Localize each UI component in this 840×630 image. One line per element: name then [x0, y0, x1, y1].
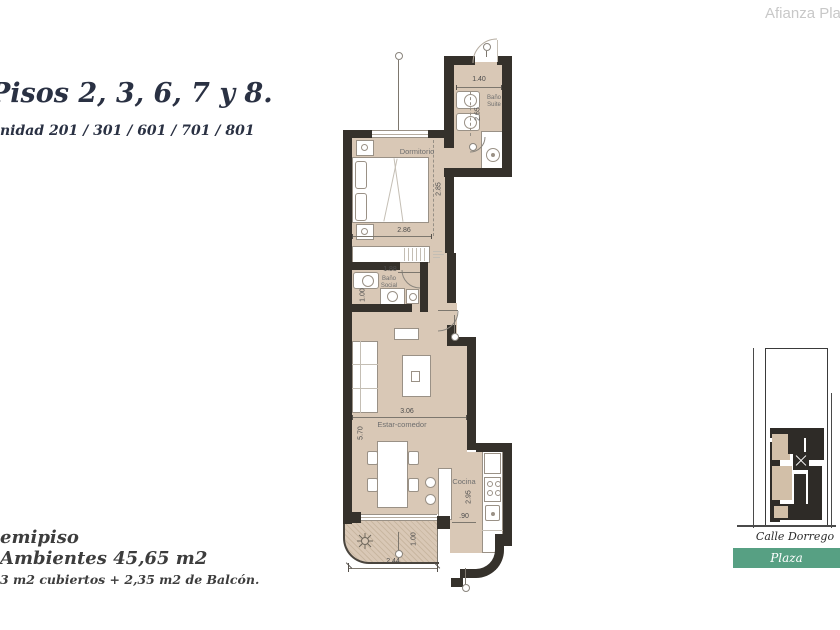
- wall: [343, 512, 361, 523]
- counter-line: [482, 530, 503, 531]
- burner-icon: [487, 481, 493, 487]
- closet-hanger: [416, 248, 417, 261]
- suite-door-leaf: [497, 40, 498, 62]
- dim-tick: [352, 234, 353, 239]
- reference-marker: [395, 550, 403, 558]
- closet-hanger: [404, 248, 405, 261]
- closet-note-mark: [433, 254, 444, 255]
- reference-marker: [483, 43, 491, 51]
- chair: [408, 478, 419, 492]
- location-map: Calle Dorrego Plaza: [720, 340, 840, 580]
- label-bano-suite: Baño: [487, 95, 501, 101]
- wall: [502, 56, 512, 177]
- sofa-cushion-line: [352, 388, 378, 389]
- wall: [467, 346, 476, 450]
- burner-icon: [495, 481, 501, 487]
- floorplan: 1.40 2.65 2.85 2.86 1.88 1.00 3.06 5.70 …: [0, 0, 840, 630]
- dim-cocina-depth: 2.95: [466, 490, 473, 504]
- lot-line: [831, 393, 832, 528]
- chair: [367, 478, 378, 492]
- dim-line: [352, 236, 432, 237]
- dim-suite-width: 1.40: [472, 76, 486, 83]
- label-bano-suite: Suite: [487, 102, 501, 108]
- closet-hanger: [412, 248, 413, 261]
- label-bano-social: Social: [381, 283, 397, 289]
- wall: [447, 253, 456, 303]
- reference-marker: [395, 52, 403, 60]
- chair: [367, 451, 378, 465]
- lamp-icon: [361, 144, 368, 151]
- wall: [451, 578, 463, 587]
- dim-dorm-depth: 2.85: [436, 182, 443, 196]
- balcony-sliding-door: [361, 514, 437, 521]
- dim-line: [452, 522, 476, 523]
- wall: [420, 262, 428, 312]
- lot-line: [753, 348, 754, 528]
- marker-leader: [486, 51, 487, 57]
- toilet-bowl: [362, 275, 374, 287]
- reference-marker: [469, 143, 477, 151]
- closet-hanger: [424, 248, 425, 261]
- dim-tick: [431, 234, 432, 239]
- closet-hanger: [408, 248, 409, 261]
- closet-note-mark: [433, 251, 442, 252]
- burner-icon: [487, 490, 493, 496]
- sofa-cushion-line: [352, 364, 378, 365]
- plant-icon: [356, 532, 374, 550]
- wall: [437, 516, 450, 529]
- stool: [425, 494, 436, 505]
- sofa: [352, 341, 378, 413]
- coffee-table-tray: [411, 371, 420, 382]
- marker-leader: [398, 532, 399, 550]
- pillow: [355, 161, 367, 189]
- dim-ext: [348, 563, 349, 572]
- marker-leader: [454, 315, 455, 333]
- wall: [444, 168, 512, 177]
- reference-marker: [462, 584, 470, 592]
- sofa-back-line: [360, 341, 361, 413]
- faucet-dot: [491, 512, 495, 516]
- street-line: [737, 525, 836, 527]
- entry-door-arc: [438, 311, 458, 331]
- wall: [428, 130, 454, 138]
- tv-console: [394, 328, 419, 340]
- wall: [445, 177, 454, 253]
- wall: [343, 130, 352, 524]
- wall: [351, 304, 412, 312]
- shower-dot: [491, 153, 495, 157]
- dim-line: [348, 568, 438, 569]
- plaza-banner: Plaza: [733, 548, 840, 568]
- dim-bano-social-depth: 1.00: [360, 288, 367, 302]
- dim-estar-depth: 5.70: [358, 426, 365, 440]
- sink-basin: [387, 291, 398, 302]
- dim-dorm-width: 2.86: [397, 227, 411, 234]
- entry-door-leaf: [438, 310, 458, 311]
- closet: [352, 246, 430, 263]
- dim-balcon-depth: 1.00: [411, 532, 418, 546]
- label-bano-social: Baño: [382, 276, 396, 282]
- wall: [503, 450, 512, 546]
- label-dormitorio: Dormitorio: [400, 147, 435, 156]
- dim-tick: [456, 85, 457, 90]
- stool: [425, 477, 436, 488]
- burner-icon: [495, 490, 501, 496]
- chair: [408, 451, 419, 465]
- pillow: [355, 193, 367, 221]
- dim-balcon-width: 2.44: [386, 558, 400, 565]
- map-plan-block: [788, 430, 804, 454]
- wall-rounded-corner: [460, 534, 504, 578]
- label-cocina: Cocina: [452, 477, 475, 486]
- plaza-label: Plaza: [770, 551, 803, 565]
- dim-estar-width: 3.06: [400, 408, 414, 415]
- dim-line: [456, 87, 502, 88]
- marker-leader: [465, 568, 466, 584]
- dim-line: [352, 417, 467, 418]
- dim-suite-depth: 2.65: [475, 107, 482, 121]
- dim-line: [470, 92, 471, 136]
- fridge: [484, 453, 501, 474]
- dim-ext: [437, 563, 438, 572]
- dim-tick: [466, 415, 467, 420]
- dim-tick: [501, 85, 502, 90]
- marker-leader: [398, 60, 399, 130]
- dim-bano-social-width: 1.88: [383, 266, 397, 273]
- label-estar-comedor: Estar-comedor: [377, 420, 426, 429]
- floor-corridor: [444, 148, 454, 170]
- dim-line: [398, 272, 420, 273]
- closet-hanger: [420, 248, 421, 261]
- dim-cocina-pass: .90: [459, 513, 469, 520]
- bedroom-window: [372, 130, 428, 138]
- washer-door: [409, 293, 417, 301]
- floorplan-sheet: { "brand": "Afianza Plaza", "header": { …: [0, 0, 840, 630]
- map-unit-highlight: [774, 506, 788, 518]
- lamp-icon: [361, 228, 368, 235]
- closet-note-mark: [433, 257, 440, 258]
- dining-table: [377, 441, 408, 508]
- reference-marker: [451, 333, 459, 341]
- kitchen-island: [438, 468, 452, 520]
- street-label: Calle Dorrego: [756, 530, 834, 543]
- map-unit-highlight: [772, 466, 792, 500]
- dim-tick: [352, 415, 353, 420]
